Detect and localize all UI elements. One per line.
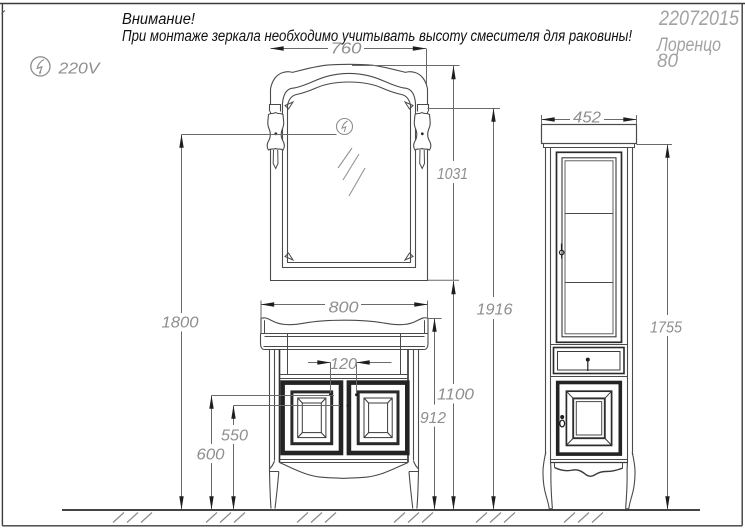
svg-text:452: 452	[573, 110, 601, 127]
svg-text:800: 800	[329, 300, 359, 317]
svg-text:При монтаже зеркала необходимо: При монтаже зеркала необходимо учитывать…	[122, 28, 633, 45]
svg-text:1916: 1916	[477, 302, 513, 319]
svg-text:1755: 1755	[650, 320, 682, 337]
svg-text:1800: 1800	[162, 315, 199, 332]
svg-text:600: 600	[197, 447, 225, 464]
svg-text:1100: 1100	[437, 387, 474, 404]
svg-text:Внимание!: Внимание!	[122, 11, 196, 28]
svg-text:760: 760	[331, 41, 362, 58]
svg-text:1031: 1031	[437, 166, 468, 183]
svg-text:80: 80	[657, 50, 678, 72]
svg-text:120: 120	[330, 356, 357, 373]
svg-text:550: 550	[221, 428, 248, 445]
svg-text:220V: 220V	[57, 61, 101, 78]
svg-text:912: 912	[420, 410, 446, 427]
svg-text:22072015: 22072015	[658, 7, 739, 30]
